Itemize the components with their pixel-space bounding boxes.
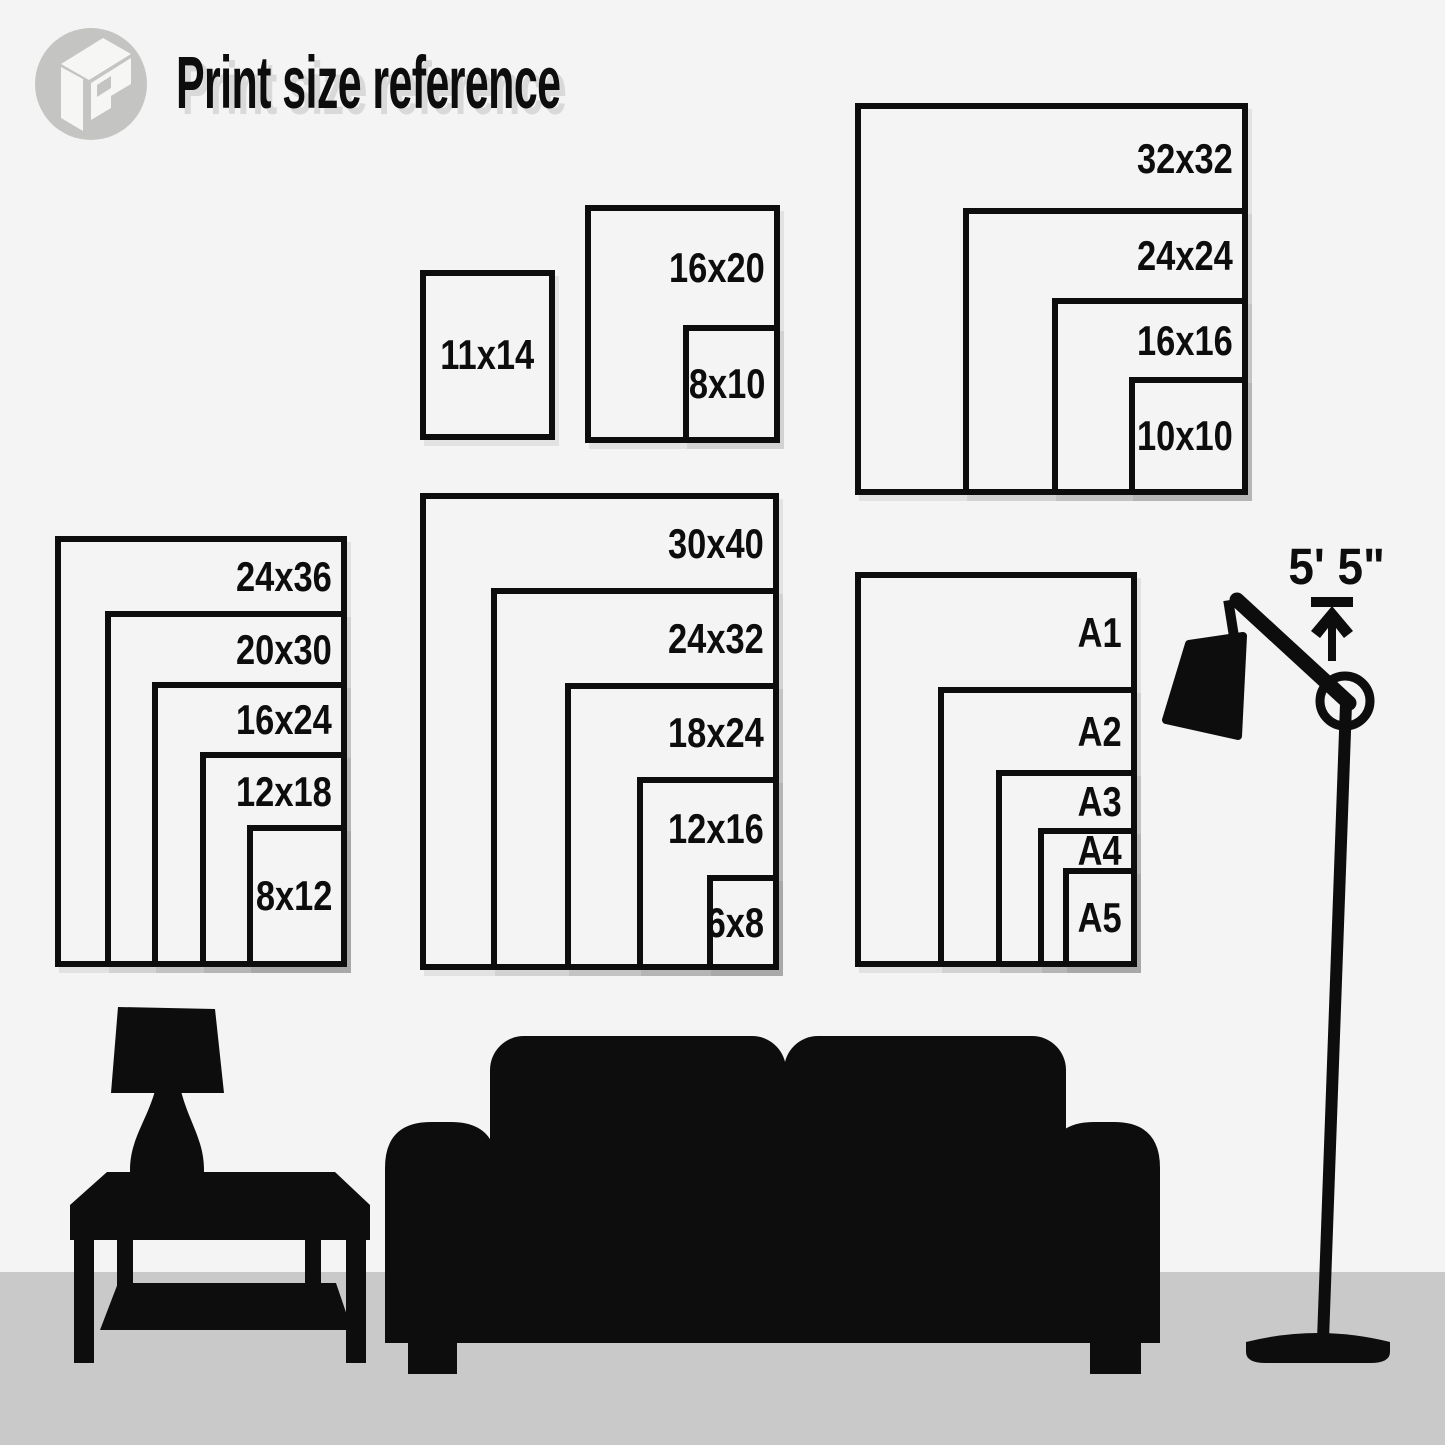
table-lamp-silhouette <box>111 1007 224 1214</box>
poster-canvas: Print size reference 11x14 16x20 8x10 32… <box>0 0 1445 1445</box>
size-label: A2 <box>1078 711 1122 753</box>
size-label: 6x8 <box>707 902 764 944</box>
height-marker: 5' 5" <box>1262 541 1412 592</box>
frame-6x8: 6x8 <box>707 875 779 970</box>
size-label: 16x20 <box>669 247 765 289</box>
size-label: 12x18 <box>236 771 332 813</box>
size-label: 11x14 <box>441 334 535 376</box>
size-label: 8x12 <box>255 875 332 917</box>
size-group-a-series: A1 A2 A3 A4 A5 <box>855 572 1137 967</box>
size-label: 8x10 <box>688 363 765 405</box>
size-label: 20x30 <box>236 629 332 671</box>
size-label: 12x16 <box>668 808 764 850</box>
size-group-portrait-center: 30x40 24x32 18x24 12x16 6x8 <box>420 493 779 970</box>
frame-11x14: 11x14 <box>420 270 555 440</box>
size-group-portrait-small: 11x14 <box>420 270 555 440</box>
size-group-portrait-medium: 16x20 8x10 <box>585 205 780 443</box>
size-label: A1 <box>1078 612 1122 654</box>
floor <box>0 1272 1445 1445</box>
size-label: 16x16 <box>1137 320 1233 362</box>
page-title: Print size reference <box>176 44 839 122</box>
frame-8x10: 8x10 <box>683 325 780 443</box>
frame-10x10: 10x10 <box>1129 377 1248 495</box>
floor-lamp-silhouette <box>1166 600 1390 1363</box>
size-label: A5 <box>1078 897 1122 939</box>
size-label: 24x36 <box>236 556 332 598</box>
size-label: 16x24 <box>236 699 332 741</box>
size-label: A4 <box>1078 830 1122 872</box>
frame-8x12: 8x12 <box>247 825 347 967</box>
size-label: 10x10 <box>1137 415 1233 457</box>
size-label: 32x32 <box>1137 138 1233 180</box>
frame-a5: A5 <box>1063 868 1137 967</box>
size-label: 24x32 <box>668 618 764 660</box>
brand-logo-icon <box>35 28 147 140</box>
size-label: 30x40 <box>668 523 764 565</box>
size-group-square: 32x32 24x24 16x16 10x10 <box>855 103 1248 495</box>
size-group-portrait-left: 24x36 20x30 16x24 12x18 8x12 <box>55 536 347 967</box>
size-label: 24x24 <box>1137 235 1233 277</box>
size-label: 18x24 <box>668 712 764 754</box>
arrow-up-icon <box>1311 597 1353 661</box>
size-label: A3 <box>1078 781 1122 823</box>
